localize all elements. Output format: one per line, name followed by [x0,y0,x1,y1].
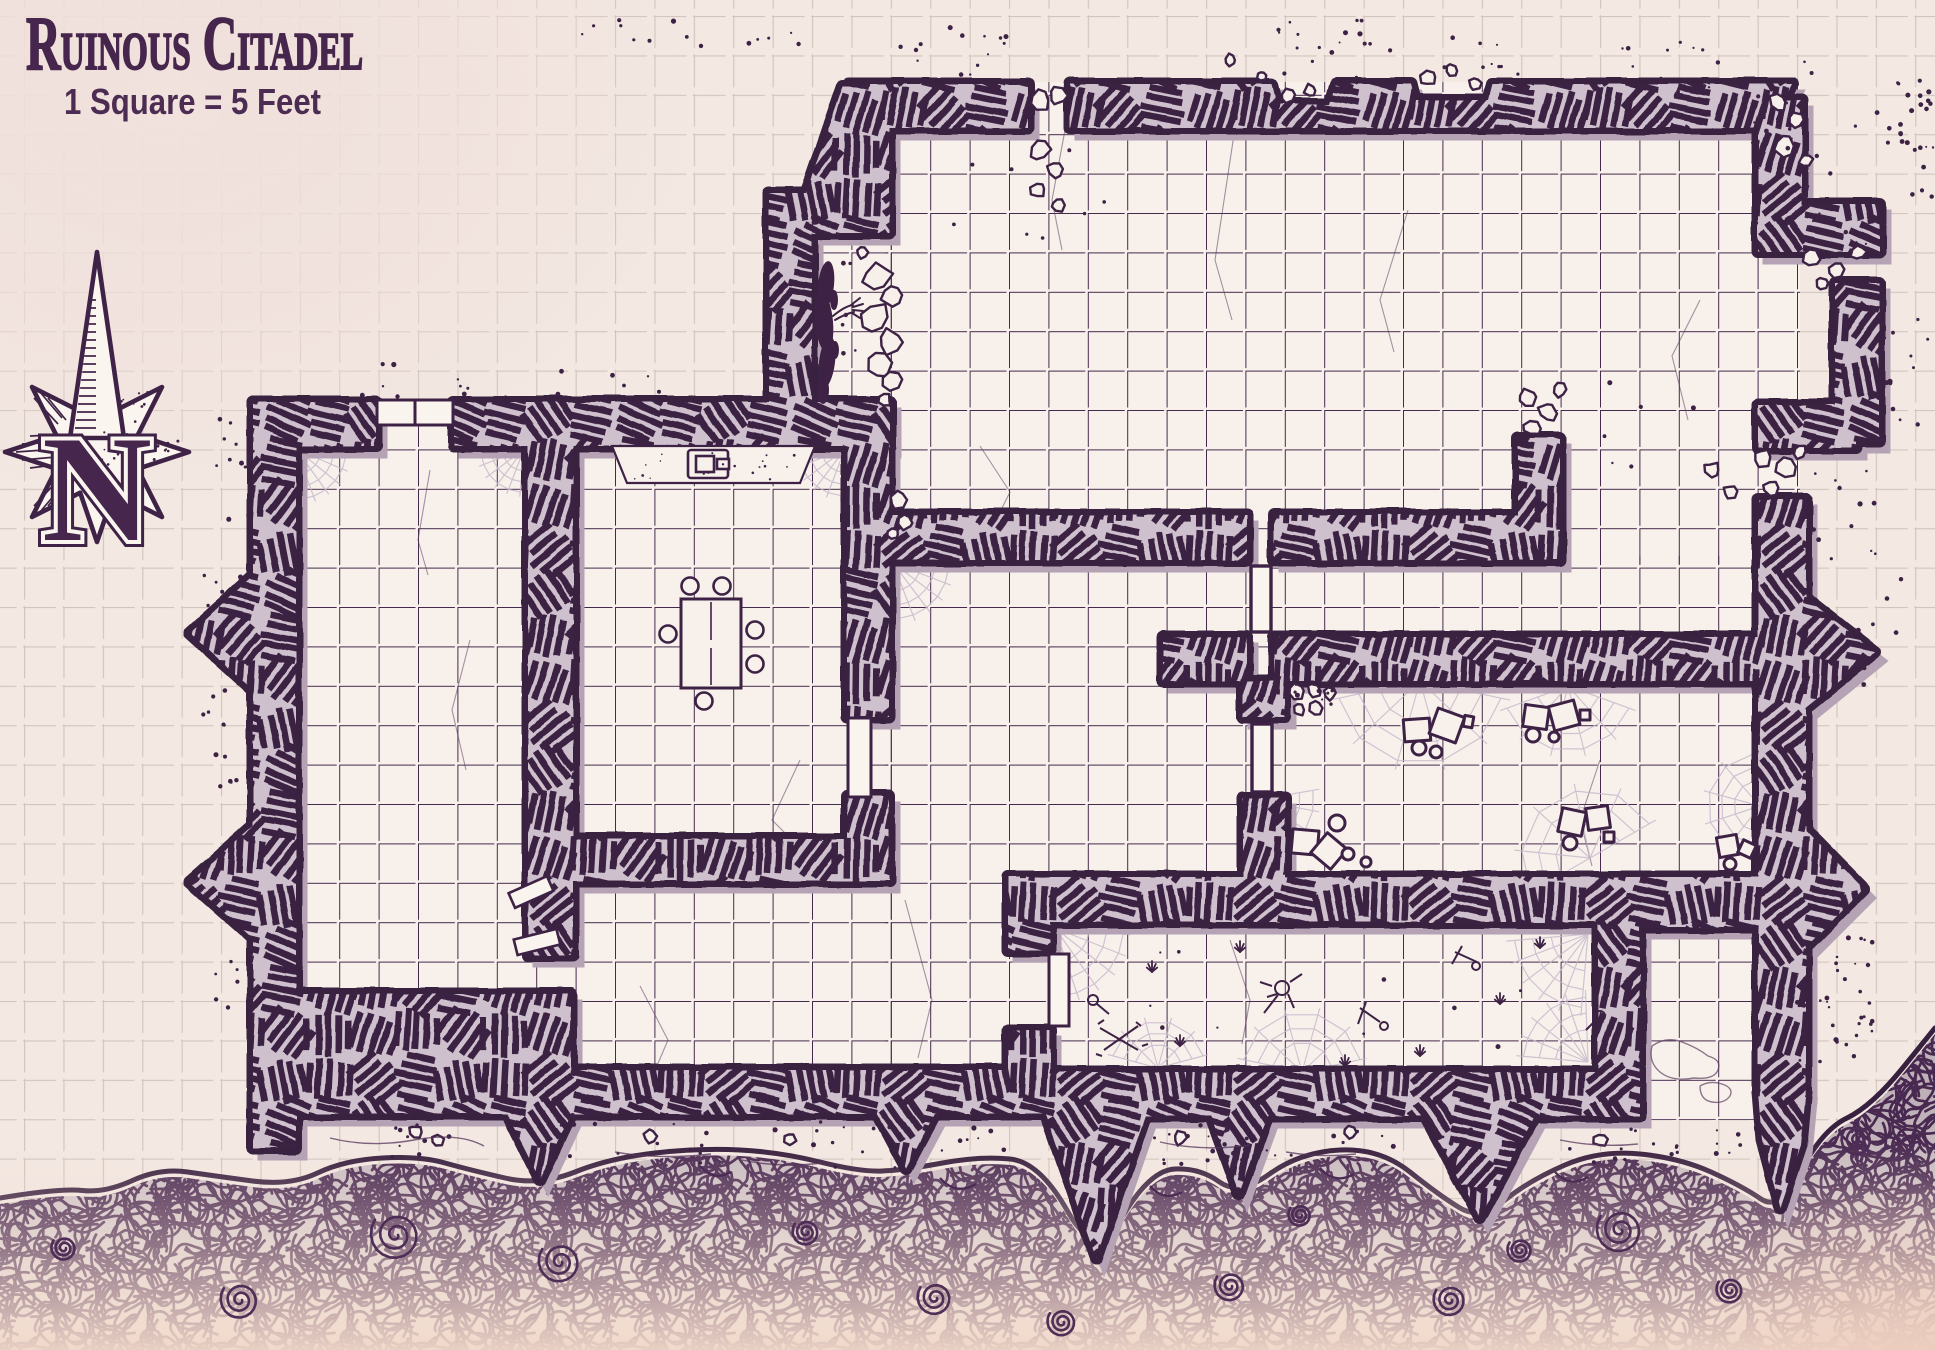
svg-text:1 Square = 5 Feet: 1 Square = 5 Feet [64,81,321,122]
svg-text:Ruinous Citadel: Ruinous Citadel [26,2,363,86]
svg-text:N: N [42,405,152,573]
